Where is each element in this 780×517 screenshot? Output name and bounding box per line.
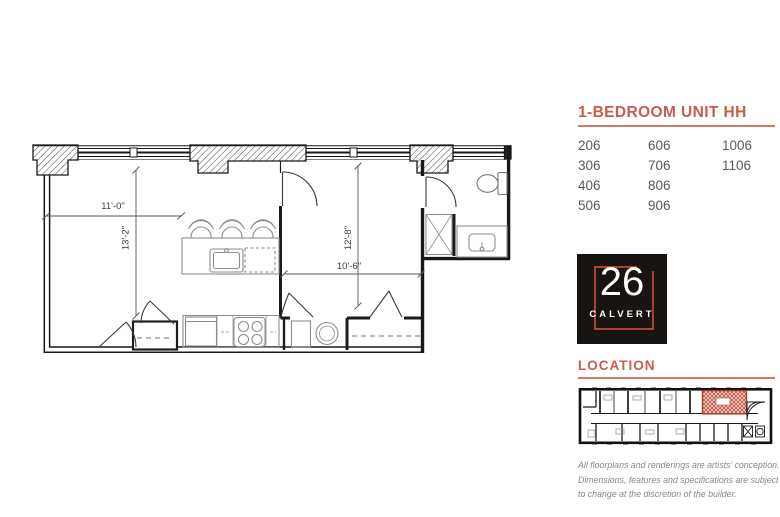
unit-number-column: 206 306 406 506 (578, 136, 648, 216)
dimension-bedroom-depth: 12'-8" (343, 226, 354, 250)
entry-area (98, 301, 177, 350)
unit-number-column: 606 706 806 906 (648, 136, 722, 216)
interior-walls (281, 161, 455, 350)
unit-number: 806 (648, 176, 722, 196)
unit-number: 1106 (722, 156, 778, 176)
door-swing-icon (283, 172, 318, 206)
dimension-living-width: 11'-0" (101, 201, 125, 212)
vanity-sink-icon (457, 226, 507, 257)
unit-highlight (703, 391, 747, 414)
door-swing-icon (426, 177, 456, 207)
bedroom (281, 172, 420, 347)
disclaimer-line: Dimensions, features and specifications … (578, 473, 780, 488)
location-rule (578, 377, 775, 379)
shower-icon (426, 215, 452, 255)
unit-number: 206 (578, 136, 648, 156)
unit-number: 706 (648, 156, 722, 176)
floorplan-sheet: 11'-0" 13'-2" 12'-8" 10'-6" (0, 0, 780, 517)
structural-columns (33, 145, 511, 175)
column-icon (410, 145, 453, 173)
unit-number-column: 1006 1106 (722, 136, 778, 216)
unit-number: 406 (578, 176, 648, 196)
building-logo: 26 CALVERT (577, 254, 667, 344)
unit-number: 506 (578, 196, 648, 216)
bathroom (426, 173, 507, 258)
kitchen-island (182, 220, 279, 274)
window-mullion (350, 148, 357, 157)
closet-doors (281, 291, 402, 317)
title-rule (578, 125, 775, 127)
dimension-bedroom-width: 10'-6" (337, 261, 361, 272)
entry-closet (133, 322, 177, 350)
column-icon (190, 145, 306, 173)
unit-title: 1-BEDROOM UNIT HH (578, 104, 778, 122)
unit-number: 906 (648, 196, 722, 216)
logo-name: CALVERT (577, 309, 667, 320)
dimension-living-depth: 13'-2" (121, 226, 132, 250)
toilet-icon (477, 173, 507, 195)
location-label: LOCATION (578, 358, 656, 373)
location-key-plan (578, 386, 775, 446)
window-mullion (130, 148, 137, 157)
refrigerator-icon (186, 317, 217, 346)
stove-icon (234, 318, 265, 347)
disclaimer: All floorplans and renderings are artist… (578, 458, 780, 502)
door-swing-icon (98, 322, 136, 348)
unit-number: 606 (648, 136, 722, 156)
washer-dryer-icon (292, 321, 339, 347)
logo-number: 26 (577, 260, 667, 305)
kitchen-counter (183, 316, 279, 348)
column-icon (33, 145, 78, 175)
disclaimer-line: All floorplans and renderings are artist… (578, 458, 780, 473)
unit-number-list: 206 306 406 506 606 706 806 906 1006 110… (578, 136, 778, 216)
unit-number: 306 (578, 156, 648, 176)
unit-number: 1006 (722, 136, 778, 156)
disclaimer-line: to change at the discretion of the build… (578, 487, 780, 502)
